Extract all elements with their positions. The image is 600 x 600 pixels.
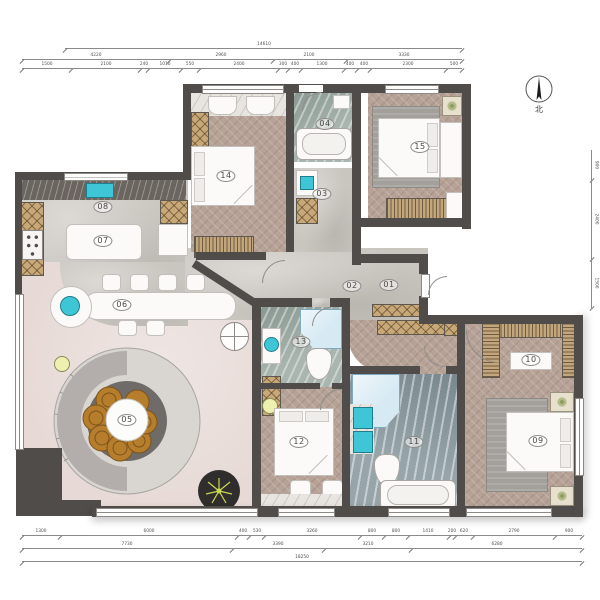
nightstand-09 [550,392,574,412]
window [64,173,128,181]
wall [352,218,471,227]
bar-stool [186,274,205,291]
dimension-row: 1500210024010105502400300400130040040023… [22,61,462,69]
bed-15 [378,118,440,178]
wall [457,324,465,512]
side-table-icon [220,322,249,351]
window [202,85,284,94]
room-label-02: 02 [342,280,361,292]
window [15,294,24,450]
dimension-row: 7730339032106280 [22,541,582,549]
entry-door-04 [299,85,323,92]
room-label-14: 14 [216,170,235,182]
wall [350,366,465,374]
stove-icon [22,230,43,260]
bay-fixture [246,96,275,115]
room-label-08: 08 [93,201,112,213]
bathtub-basin [302,133,346,155]
bathtub-basin [387,485,449,505]
dimension-row: 4220296021003330 [22,52,462,60]
blanket-fold [379,157,398,176]
wall [462,84,471,229]
plant-stand-15 [442,96,462,116]
window [385,85,439,94]
room-label-04: 04 [315,118,334,130]
room-label-15: 15 [410,141,429,153]
dimension-row: 18250 [22,554,582,562]
room-label-03: 03 [312,188,331,200]
bar-stool [146,320,165,336]
kitchen-sink [86,183,114,198]
bar-stool [102,274,121,291]
bar-sink [60,296,80,316]
hall-wardrobe [372,304,422,317]
bar-stool [158,274,177,291]
fridge [158,224,188,256]
door-swing [428,276,447,295]
pillow [560,418,571,442]
window [575,398,584,476]
window [96,508,258,517]
cabinet-03 [296,198,318,224]
wall [15,172,22,294]
blanket-fold [234,185,253,204]
room-label-05: 05 [117,414,136,426]
north-arrow [524,74,554,104]
sink-04 [333,95,350,109]
room-label-13: 13 [291,336,310,348]
bar-stool [130,274,149,291]
sunken-lounge-graphic [42,342,212,512]
window [466,508,552,517]
bathtub-04 [296,128,352,160]
pillow [194,152,205,176]
wall [252,298,261,510]
room-label-12: 12 [289,436,308,448]
wall [425,315,583,324]
window [278,508,335,517]
room-label-11: 11 [404,436,423,448]
sink-03 [300,176,314,190]
wall [183,84,191,179]
bar-stool [118,320,137,336]
door-opening-11 [420,366,446,374]
window [388,508,450,517]
blanket-fold [507,451,526,470]
wall [352,84,361,227]
north-arrow-icon [524,74,554,104]
room-label-06: 06 [112,299,131,311]
pillow [427,149,438,173]
dimension-row: 14610 [65,41,462,49]
nightstand-09 [550,486,574,506]
room-label-07: 07 [93,235,112,247]
door-opening-13 [312,298,330,307]
pillow [305,411,329,422]
wall [342,298,350,512]
wall [419,296,428,324]
wall [260,383,320,389]
pillow [279,411,303,422]
wall [358,254,428,263]
dresser-15 [440,122,462,178]
pillow [194,178,205,202]
room-label-09: 09 [528,435,547,447]
kitchen-cabinet-right [160,200,188,224]
room-label-10: 10 [521,354,540,366]
bay-fixture [208,96,237,115]
sink-11 [353,407,373,429]
dimension-column: 90024001500 [591,150,599,308]
room-label-01: 01 [379,279,398,291]
pillow [560,444,571,468]
wall [196,252,266,260]
sink-13 [264,337,279,352]
north-label: 北 [535,104,543,115]
wall [419,254,428,274]
blanket-fold [309,455,328,474]
dimension-row: 1300600040053032608008001410200620279090… [22,528,582,536]
pillow [427,123,438,147]
sink-11 [353,431,373,453]
floor-plan: 北 010203040506070809101112131415 1461042… [0,0,600,600]
wall [286,84,294,252]
dining-bar-06 [84,292,236,320]
